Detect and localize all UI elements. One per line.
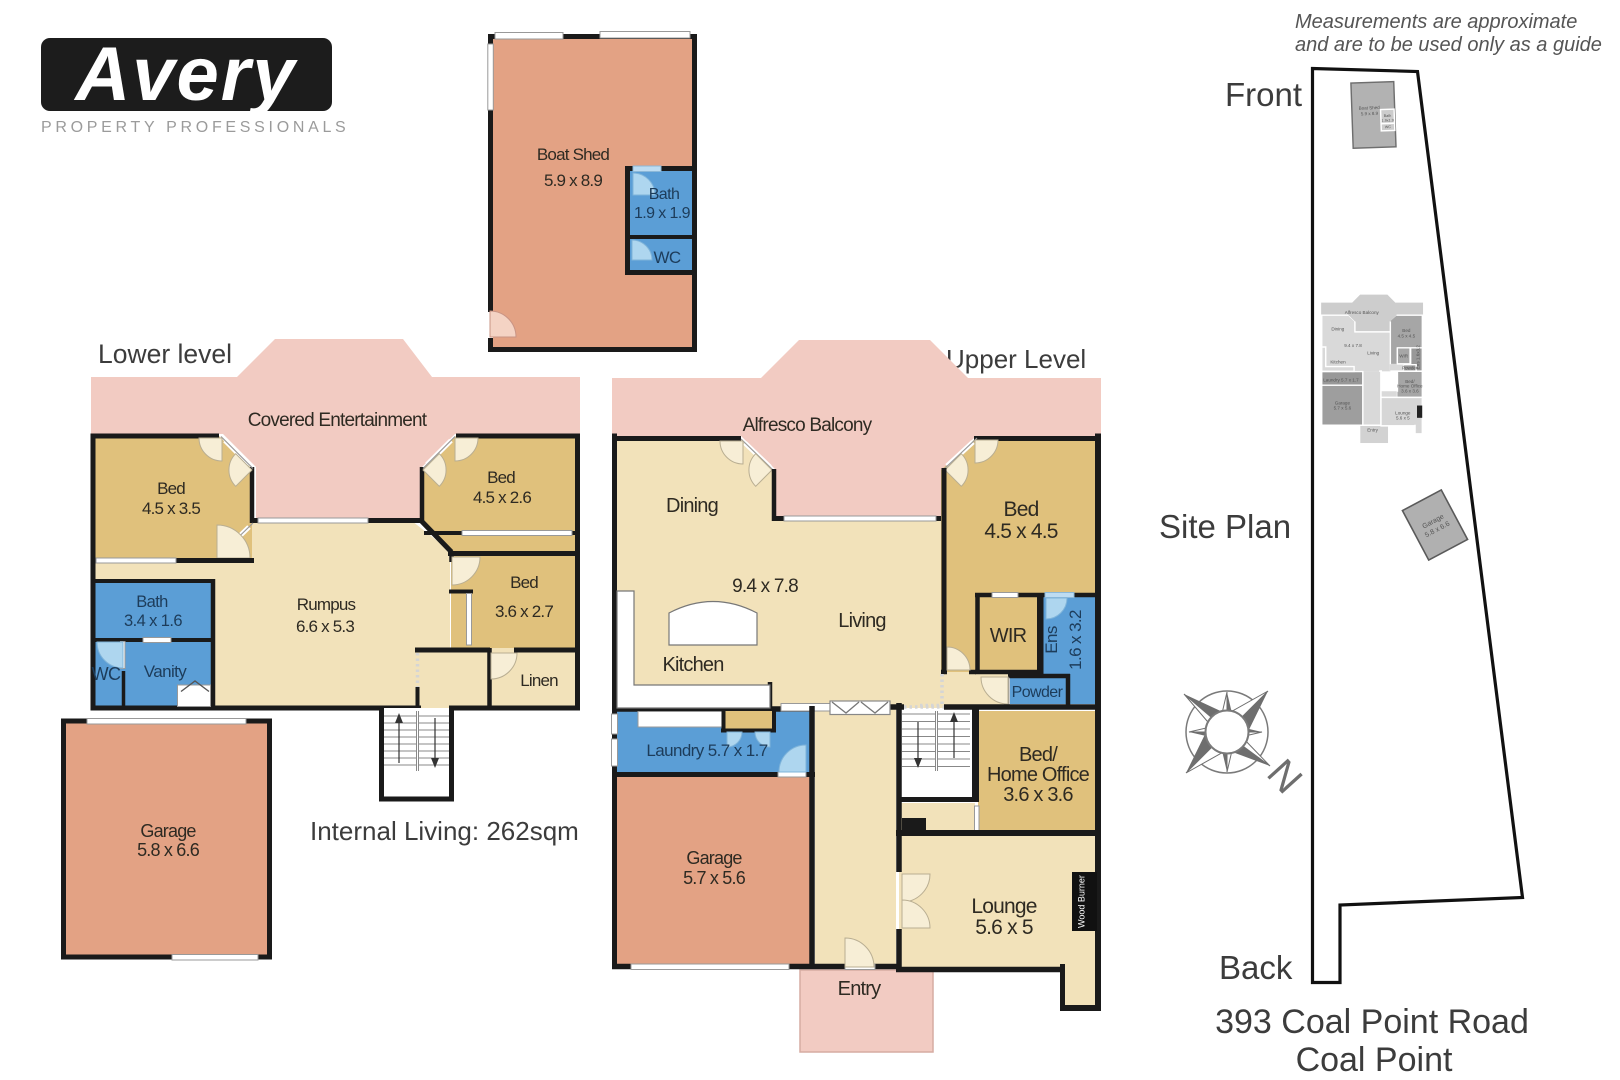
svg-text:Garage: Garage — [686, 848, 742, 868]
svg-text:PROPERTY PROFESSIONALS: PROPERTY PROFESSIONALS — [41, 119, 349, 136]
svg-text:Bath: Bath — [649, 186, 680, 203]
svg-text:Alfresco Balcony: Alfresco Balcony — [743, 415, 873, 436]
svg-text:Laundry 5.7 x 1.7: Laundry 5.7 x 1.7 — [1323, 378, 1359, 383]
svg-text:5.7 x 5.6: 5.7 x 5.6 — [683, 868, 746, 888]
svg-text:Bed: Bed — [510, 573, 538, 592]
svg-text:Bed: Bed — [1004, 498, 1039, 521]
svg-text:4.5 x 4.5: 4.5 x 4.5 — [984, 520, 1057, 543]
svg-text:Garage: Garage — [1335, 400, 1351, 405]
svg-text:Garage: Garage — [140, 821, 196, 841]
svg-text:Living: Living — [1367, 350, 1379, 355]
svg-text:WC: WC — [653, 248, 680, 267]
svg-text:Boat Shed: Boat Shed — [537, 145, 610, 164]
svg-text:393 Coal Point Road: 393 Coal Point Road — [1215, 1003, 1529, 1041]
svg-text:Alfresco Balcony: Alfresco Balcony — [1345, 310, 1380, 315]
svg-text:4.5 x 4.5: 4.5 x 4.5 — [1398, 333, 1416, 338]
svg-text:5.8 x 6.6: 5.8 x 6.6 — [137, 840, 200, 860]
svg-text:5.9 x 8.9: 5.9 x 8.9 — [1361, 111, 1379, 117]
svg-text:5.9 x 8.9: 5.9 x 8.9 — [544, 171, 602, 190]
svg-text:Linen: Linen — [520, 671, 558, 690]
svg-text:Wood Burner: Wood Burner — [1077, 875, 1087, 928]
svg-text:Internal Living: 262sqm: Internal Living: 262sqm — [310, 816, 579, 846]
svg-text:4.5 x 2.6: 4.5 x 2.6 — [473, 488, 531, 507]
svg-text:Boat Shed: Boat Shed — [1359, 105, 1381, 111]
svg-text:5.6 x 5: 5.6 x 5 — [1396, 415, 1410, 420]
svg-text:Measurements are approximate: Measurements are approximate — [1295, 11, 1577, 33]
svg-text:Back: Back — [1219, 949, 1293, 986]
svg-text:Avery: Avery — [73, 32, 298, 117]
svg-text:Bed: Bed — [157, 479, 185, 498]
svg-text:Dining: Dining — [1331, 327, 1344, 332]
svg-text:Entry: Entry — [838, 978, 881, 1000]
svg-text:Home Office: Home Office — [987, 764, 1090, 786]
svg-text:Home Office: Home Office — [1397, 384, 1423, 389]
svg-text:Bed: Bed — [487, 468, 515, 487]
svg-text:Ens 1.6x3.2: Ens 1.6x3.2 — [1416, 345, 1421, 370]
svg-text:Coal Point: Coal Point — [1296, 1041, 1453, 1079]
svg-text:Entry: Entry — [1367, 428, 1378, 433]
svg-text:Bath: Bath — [136, 593, 168, 611]
svg-text:Lounge: Lounge — [971, 895, 1036, 918]
svg-text:3.6 x 3.6: 3.6 x 3.6 — [1401, 388, 1419, 393]
svg-text:5.6 x 5: 5.6 x 5 — [975, 916, 1033, 939]
svg-text:Covered Entertainment: Covered Entertainment — [248, 410, 428, 431]
svg-text:1.9x1.9: 1.9x1.9 — [1382, 118, 1394, 122]
svg-text:Bath: Bath — [1384, 114, 1392, 118]
svg-text:1.9 x 1.9: 1.9 x 1.9 — [634, 205, 691, 222]
svg-text:Laundry 5.7 x 1.7: Laundry 5.7 x 1.7 — [646, 741, 767, 760]
svg-text:6.6 x 5.3: 6.6 x 5.3 — [296, 617, 354, 636]
svg-text:1.6 x 3.2: 1.6 x 3.2 — [1066, 610, 1085, 670]
svg-text:4.5 x 3.5: 4.5 x 3.5 — [142, 499, 200, 518]
svg-text:Site Plan: Site Plan — [1159, 508, 1291, 545]
svg-text:Lower level: Lower level — [98, 339, 232, 369]
svg-text:Lounge: Lounge — [1395, 410, 1411, 415]
svg-text:Bed: Bed — [1402, 328, 1411, 333]
svg-text:3.6 x 3.6: 3.6 x 3.6 — [1003, 784, 1073, 806]
svg-text:5.7 x 5.6: 5.7 x 5.6 — [1334, 405, 1352, 410]
svg-text:WIR: WIR — [990, 625, 1027, 647]
svg-text:Upper Level: Upper Level — [946, 344, 1086, 374]
svg-text:9.4 x 7.8: 9.4 x 7.8 — [732, 576, 798, 597]
svg-text:Kitchen: Kitchen — [662, 654, 723, 676]
svg-text:Ens: Ens — [1042, 626, 1061, 654]
svg-text:WC: WC — [1385, 125, 1392, 129]
svg-text:9.4 x 7.8: 9.4 x 7.8 — [1344, 343, 1362, 348]
svg-text:WIR: WIR — [1399, 354, 1409, 359]
svg-text:Bed/: Bed/ — [1019, 744, 1058, 766]
svg-text:and are to be used only as a g: and are to be used only as a guide — [1295, 34, 1602, 56]
svg-text:Living: Living — [838, 610, 885, 632]
svg-text:Rumpus: Rumpus — [297, 595, 356, 614]
svg-text:Vanity: Vanity — [144, 662, 187, 681]
svg-text:3.4 x 1.6: 3.4 x 1.6 — [124, 612, 182, 630]
svg-text:Dining: Dining — [666, 495, 718, 517]
svg-text:Powder: Powder — [1012, 684, 1064, 701]
svg-text:Front: Front — [1225, 76, 1302, 113]
svg-text:WC: WC — [92, 664, 121, 684]
svg-text:Kitchen: Kitchen — [1330, 360, 1346, 365]
svg-text:Bed/: Bed/ — [1405, 379, 1415, 384]
svg-text:3.6 x 2.7: 3.6 x 2.7 — [495, 602, 553, 621]
